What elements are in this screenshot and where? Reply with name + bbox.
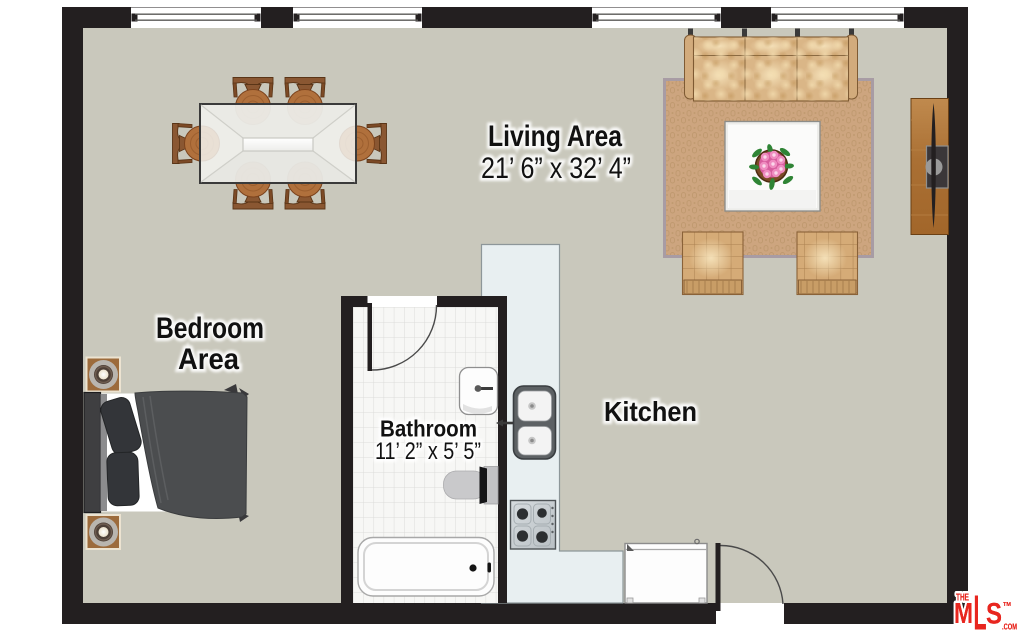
svg-text:Area: Area	[178, 343, 239, 376]
svg-text:TM: TM	[1003, 602, 1011, 608]
svg-text:11’ 2” x 5’ 5”: 11’ 2” x 5’ 5”	[375, 438, 481, 465]
svg-text:Bedroom: Bedroom	[156, 312, 264, 345]
svg-text:M: M	[954, 598, 973, 630]
svg-text:S: S	[986, 598, 1002, 631]
svg-text:Living Area: Living Area	[488, 120, 622, 153]
svg-text:L: L	[974, 587, 987, 641]
svg-text:21’ 6” x 32’ 4”: 21’ 6” x 32’ 4”	[481, 152, 631, 185]
svg-text:.COM: .COM	[1002, 622, 1017, 632]
svg-text:Kitchen: Kitchen	[604, 396, 697, 427]
